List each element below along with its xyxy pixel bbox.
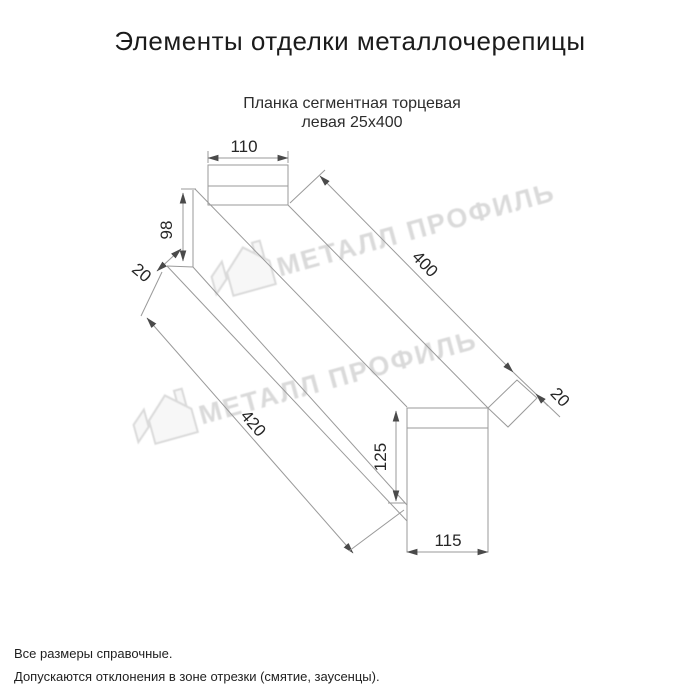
house-logo-icon bbox=[206, 240, 276, 300]
ext-420-far bbox=[349, 510, 404, 551]
footnotes: Все размеры справочные. Допускаются откл… bbox=[14, 642, 380, 688]
technical-drawing-svg: МЕТАЛЛ ПРОФИЛЬ МЕТАЛЛ ПРОФИЛЬ 110 bbox=[0, 0, 700, 700]
dim-400-label: 400 bbox=[408, 247, 441, 281]
footnote-line2: Допускаются отклонения в зоне отрезки (с… bbox=[14, 665, 380, 688]
far-end-flange bbox=[488, 380, 537, 427]
house-logo-icon bbox=[128, 388, 198, 448]
dim-20-far-arrow bbox=[536, 394, 548, 406]
drawing-page: Элементы отделки металлочерепицы Планка … bbox=[0, 0, 700, 700]
dim-20-near-label: 20 bbox=[128, 259, 155, 286]
dim-20-far-label: 20 bbox=[547, 384, 574, 411]
watermark-upper: МЕТАЛЛ ПРОФИЛЬ bbox=[206, 161, 559, 300]
footnote-line1: Все размеры справочные. bbox=[14, 642, 380, 665]
hem-near-end-edge bbox=[167, 266, 193, 267]
dim-125-label: 125 bbox=[371, 443, 390, 471]
watermark-lower: МЕТАЛЛ ПРОФИЛЬ bbox=[128, 309, 481, 448]
ext-400-near bbox=[290, 170, 325, 203]
watermark-text: МЕТАЛЛ ПРОФИЛЬ bbox=[196, 325, 481, 431]
hem-long-edge bbox=[167, 266, 407, 521]
dim-98-label: 98 bbox=[157, 221, 176, 240]
dim-115-label: 115 bbox=[434, 531, 461, 550]
near-end-section bbox=[208, 165, 288, 205]
dim-110-label: 110 bbox=[230, 137, 257, 156]
